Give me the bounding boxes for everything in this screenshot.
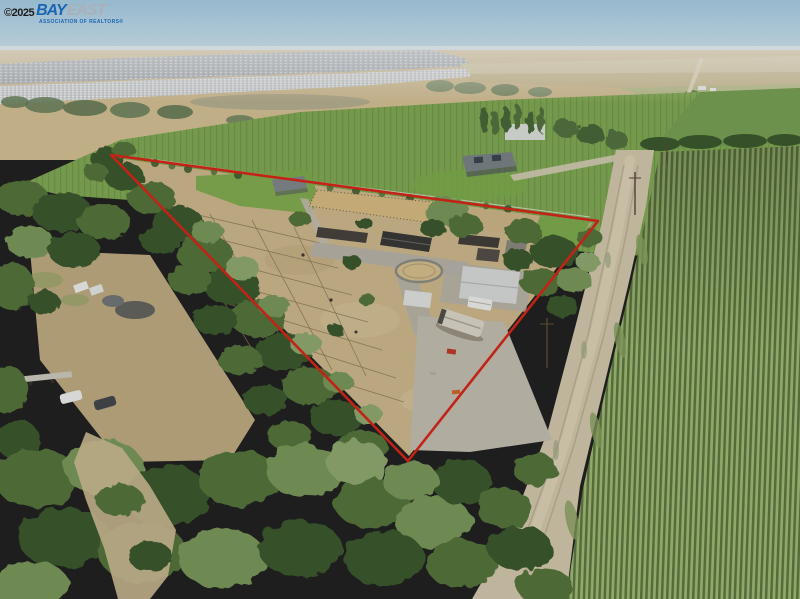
copyright-text: ©2025 bbox=[4, 8, 34, 19]
watermark-brand-row: ©2025 BAY EAST bbox=[4, 3, 123, 19]
photo-grain bbox=[0, 0, 800, 599]
watermark-logo: ©2025 BAY EAST ASSOCIATION OF REALTORS® bbox=[4, 3, 123, 25]
brand-bay-text: BAY bbox=[36, 3, 66, 19]
brand-tagline: ASSOCIATION OF REALTORS® bbox=[39, 20, 123, 25]
aerial-property-photo: ©2025 BAY EAST ASSOCIATION OF REALTORS® bbox=[0, 0, 800, 599]
scene-canvas bbox=[0, 0, 800, 599]
brand-east-text: EAST bbox=[67, 3, 106, 19]
